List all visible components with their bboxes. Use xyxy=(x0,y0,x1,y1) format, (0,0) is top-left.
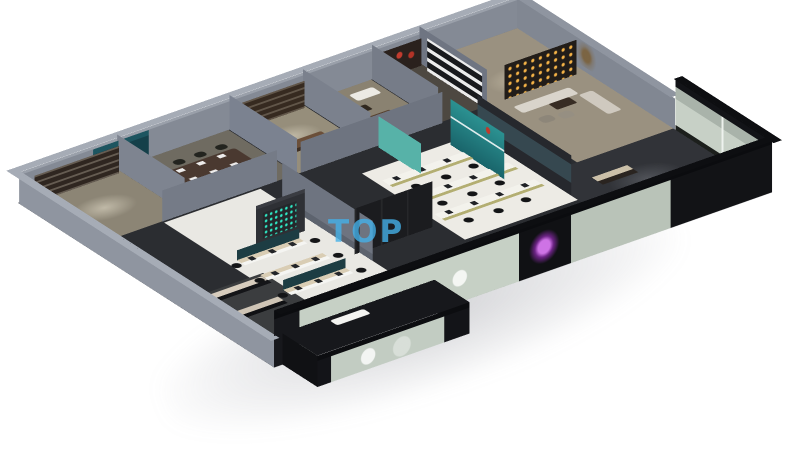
watermark-logo: TOP xyxy=(328,214,404,250)
office-building-3d xyxy=(18,28,772,368)
floorplan-render-canvas: TOP xyxy=(0,0,800,450)
